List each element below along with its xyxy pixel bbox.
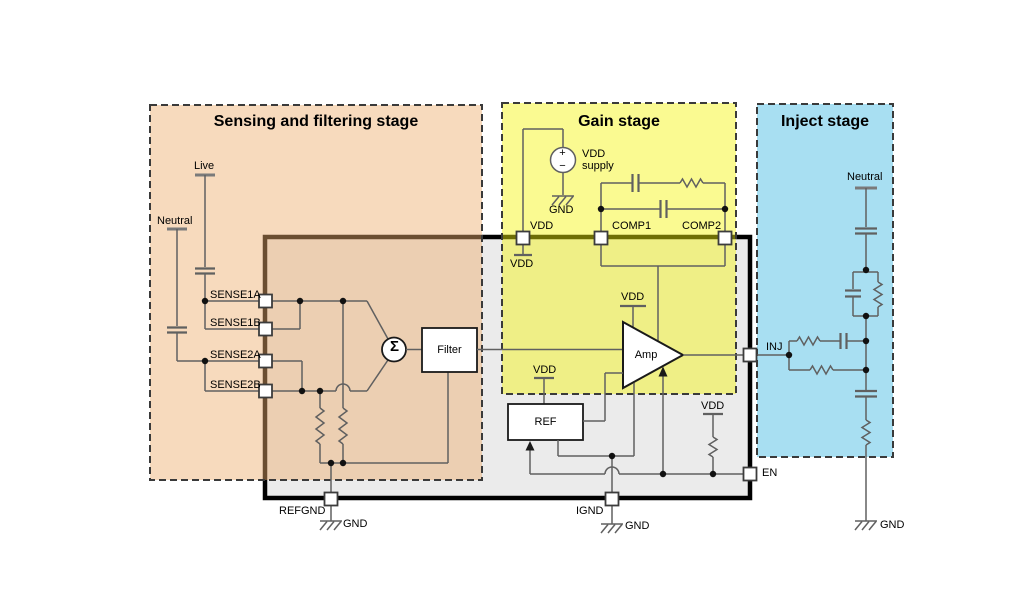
gnd-supply-label: GND [549, 204, 573, 216]
pin-refgnd [325, 493, 338, 506]
ground-icon [601, 524, 623, 533]
resistor [797, 337, 820, 345]
amp-block-label: Amp [626, 349, 666, 361]
vdd-pin-stub [514, 245, 532, 256]
ic-outline [265, 237, 750, 498]
inject-stage-title: Inject stage [757, 113, 893, 130]
vdd-stub-label-amp: VDD [621, 291, 644, 303]
compensation-network [601, 174, 725, 341]
sense-bias-resistors [316, 301, 448, 493]
gnd-refgnd-label: GND [343, 518, 367, 530]
vdd-stub-label-pin: VDD [510, 258, 533, 270]
gain-stage-box [502, 103, 736, 394]
arrow-up-icon [659, 367, 668, 377]
schematic-canvas [0, 0, 1031, 610]
pin-label-comp1: COMP1 [612, 220, 651, 232]
pin-label-comp2: COMP2 [682, 220, 721, 232]
pin-sense2b [259, 385, 272, 398]
resistor [680, 179, 703, 187]
inject-stage-box [757, 104, 893, 457]
resistor [316, 408, 324, 444]
circuit-diagram: Sensing and filtering stage Gain stage I… [0, 0, 1031, 610]
ic-pins [259, 232, 757, 506]
vdd-stub-label-ref: VDD [533, 364, 556, 376]
pin-inj [744, 349, 757, 362]
pin-label-refgnd: REFGND [279, 505, 325, 517]
pin-label-en: EN [762, 467, 777, 479]
vdd-stub-label-en: VDD [701, 400, 724, 412]
arrow-up-icon [526, 441, 535, 451]
pin-label-inj: INJ [766, 341, 783, 353]
pin-sense1b [259, 323, 272, 336]
pin-en [744, 468, 757, 481]
pin-label-sense1b: SENSE1B [210, 317, 261, 329]
vdd-supply-label: VDD supply [582, 148, 614, 172]
sensing-stage-title: Sensing and filtering stage [150, 113, 482, 130]
live-input-branch [195, 175, 215, 329]
neutral-sense-label: Neutral [157, 215, 192, 227]
ref-block [508, 373, 634, 493]
pin-label-ignd: IGND [576, 505, 604, 517]
live-label: Live [194, 160, 214, 172]
filter-block-label: Filter [422, 344, 477, 356]
gain-stage-title: Gain stage [502, 113, 736, 130]
pin-comp2 [719, 232, 732, 245]
wire-hop [336, 384, 350, 391]
resistor [339, 408, 347, 444]
resistor [874, 282, 882, 307]
amp-block [620, 306, 743, 388]
ref-block-label: REF [508, 416, 583, 428]
ground-icon [855, 521, 877, 530]
pin-comp1 [595, 232, 608, 245]
pin-label-sense1a: SENSE1A [210, 289, 261, 301]
vdd-supply-line2: supply [582, 160, 614, 172]
vdd-supply-line1: VDD [582, 148, 605, 160]
supply-minus-sign: − [556, 160, 569, 172]
pin-vdd [517, 232, 530, 245]
resistor [810, 366, 833, 374]
gnd-inject-label: GND [880, 519, 904, 531]
pin-label-sense2a: SENSE2A [210, 349, 261, 361]
pin-label-sense2b: SENSE2B [210, 379, 261, 391]
pin-ignd [606, 493, 619, 506]
wire-hop [605, 467, 619, 474]
pin-label-vdd: VDD [530, 220, 553, 232]
ground-icon [320, 521, 342, 530]
sense-wires [205, 301, 367, 391]
resistor [862, 420, 870, 445]
resistor [709, 437, 717, 457]
summing-node-label: Σ [386, 341, 403, 353]
gnd-ignd-label: GND [625, 520, 649, 532]
neutral-inject-label: Neutral [847, 171, 882, 183]
supply-plus-sign: + [556, 147, 569, 159]
neutral-input-branch [167, 229, 205, 391]
